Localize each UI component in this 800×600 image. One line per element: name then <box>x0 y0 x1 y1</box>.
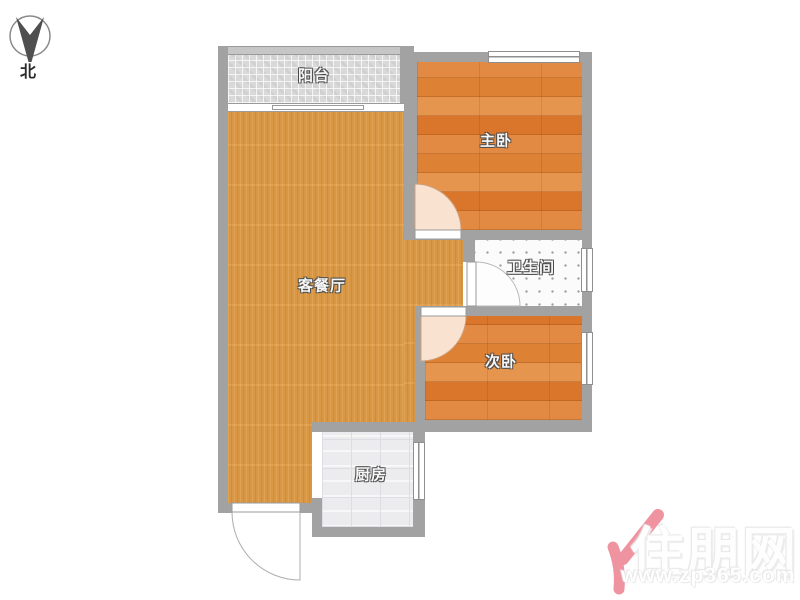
wall <box>218 503 322 513</box>
floor-plan: 阳台 主卧 客餐厅 卫生间 次卧 厨房 北 住朋网 www.zp365.com <box>0 0 800 600</box>
wall <box>415 420 592 432</box>
balcony-label: 阳台 <box>298 65 330 86</box>
room-living-strip <box>404 306 415 424</box>
balcony-sliding-door <box>228 103 404 112</box>
kitchen-label: 厨房 <box>355 464 387 485</box>
bathroom-window <box>581 248 593 292</box>
wall <box>415 306 425 432</box>
sliding-door-panel <box>272 105 364 110</box>
bathroom-label: 卫生间 <box>507 257 555 278</box>
master-bedroom-window <box>488 51 580 63</box>
entrance-door-swing <box>232 512 300 580</box>
compass: 北 <box>4 6 56 82</box>
living-dining-label: 客餐厅 <box>298 275 346 296</box>
north-arrow-icon <box>4 6 56 64</box>
kitchen-opening <box>312 432 322 498</box>
watermark-url: www.zp365.com <box>621 564 795 588</box>
wall <box>463 235 475 262</box>
wall <box>404 52 417 240</box>
wall <box>404 230 592 240</box>
wall <box>218 46 228 513</box>
balcony-railing <box>218 46 412 55</box>
room-living-hall <box>404 240 463 306</box>
north-label: 北 <box>4 58 52 82</box>
wall <box>312 422 425 432</box>
second-bedroom-label: 次卧 <box>485 351 517 372</box>
wall <box>418 306 592 316</box>
master-bedroom-label: 主卧 <box>480 130 512 151</box>
wall <box>312 527 425 537</box>
second-bedroom-window <box>581 332 593 385</box>
kitchen-window <box>413 442 425 500</box>
